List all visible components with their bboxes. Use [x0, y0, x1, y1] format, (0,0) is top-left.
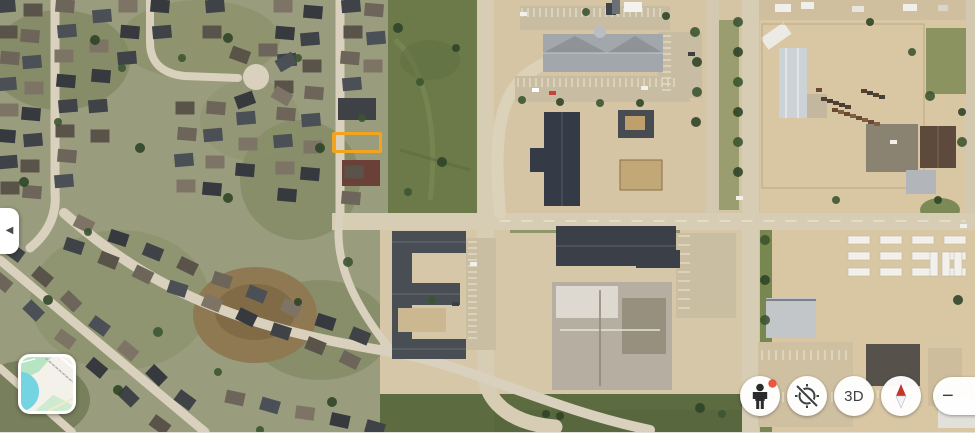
zoom-out-button[interactable]: −: [933, 377, 975, 415]
chevron-left-icon: ◀: [6, 226, 14, 236]
my-location-button[interactable]: [787, 376, 827, 416]
street-view-pegman-button[interactable]: [740, 376, 780, 416]
location-disabled-icon: [787, 376, 827, 416]
compass-needle-icon: [881, 376, 921, 416]
view-3d-label: 3D: [844, 388, 864, 405]
compass-button[interactable]: [881, 376, 921, 416]
parcel-highlight[interactable]: [332, 132, 382, 153]
minimap-preview: [21, 357, 73, 411]
notification-badge: [768, 379, 776, 387]
minus-icon: −: [942, 386, 954, 406]
satellite-map[interactable]: [0, 0, 975, 432]
side-panel-collapse-button[interactable]: ◀: [0, 208, 19, 254]
map-viewport: ◀: [0, 0, 975, 435]
minimap-layer-toggle[interactable]: [18, 354, 76, 414]
grass-field: [388, 0, 480, 218]
pegman-icon: [740, 376, 780, 416]
view-3d-button[interactable]: 3D: [834, 376, 874, 416]
